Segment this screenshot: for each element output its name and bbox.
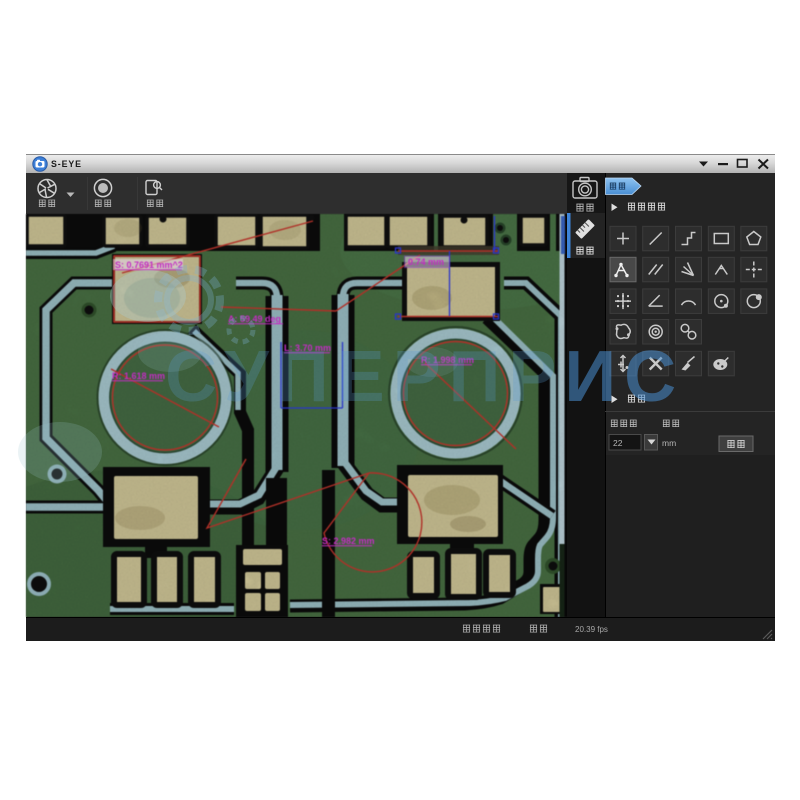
svg-text:mm: mm	[662, 438, 676, 448]
svg-text:S: 0.7691 mm^2: S: 0.7691 mm^2	[115, 260, 183, 270]
svg-text:S: 2.982 mm: S: 2.982 mm	[322, 536, 375, 546]
svg-text:L: 3.70 mm: L: 3.70 mm	[284, 343, 331, 353]
svg-text:A: 59.49 deg: A: 59.49 deg	[228, 314, 281, 324]
svg-text:R: 1.998 mm: R: 1.998 mm	[421, 355, 474, 365]
svg-text:20.39 fps: 20.39 fps	[575, 625, 608, 634]
svg-text:R: 1.618 mm: R: 1.618 mm	[112, 371, 165, 381]
svg-text:22: 22	[613, 438, 623, 448]
svg-text:S-EYE: S-EYE	[51, 159, 82, 169]
svg-text:0.74 mm: 0.74 mm	[408, 257, 444, 267]
